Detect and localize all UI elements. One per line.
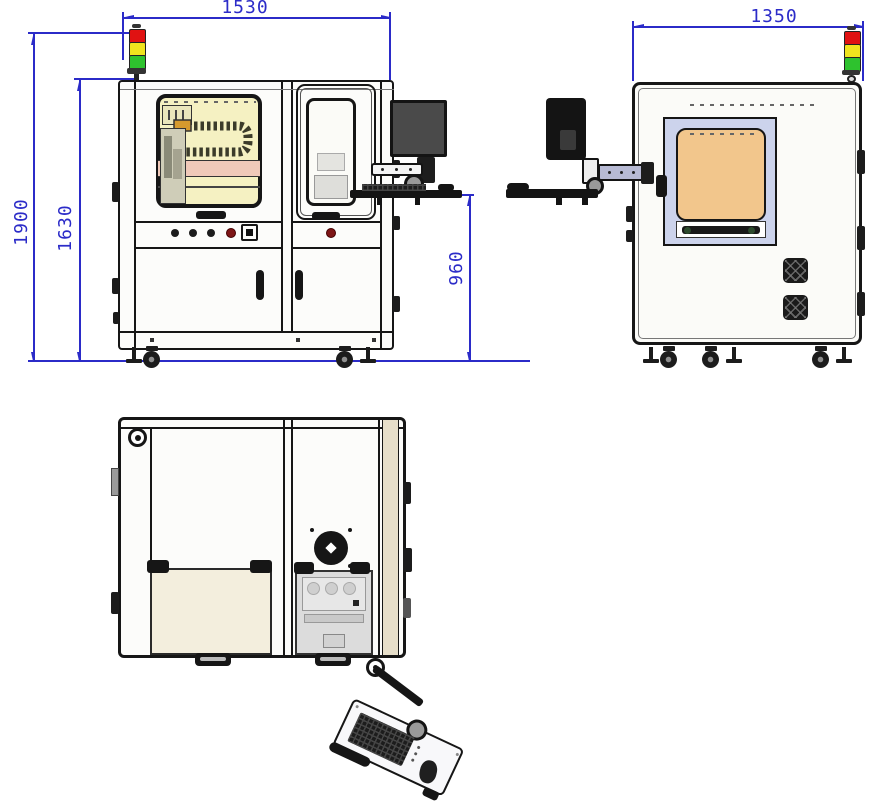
fan-top-icon [314, 531, 348, 565]
top-hood-panel [150, 568, 272, 655]
mouse-icon [417, 759, 439, 785]
drawing-canvas: 1530 1900 1630 960 1350 [0, 0, 885, 801]
panel-clamp [350, 562, 370, 574]
keyboard-arm [372, 665, 425, 707]
signal-tower-top-icon [128, 428, 147, 447]
top-edge-stripe [382, 420, 399, 655]
top-door-handle [315, 653, 351, 666]
panel-clamp [294, 562, 314, 574]
keyboard-tray-top [332, 698, 465, 797]
hood-clamp [147, 560, 169, 573]
top-view [0, 0, 885, 801]
top-door-handle [195, 653, 231, 666]
hood-clamp [250, 560, 272, 573]
top-equipment-panel [295, 570, 373, 655]
